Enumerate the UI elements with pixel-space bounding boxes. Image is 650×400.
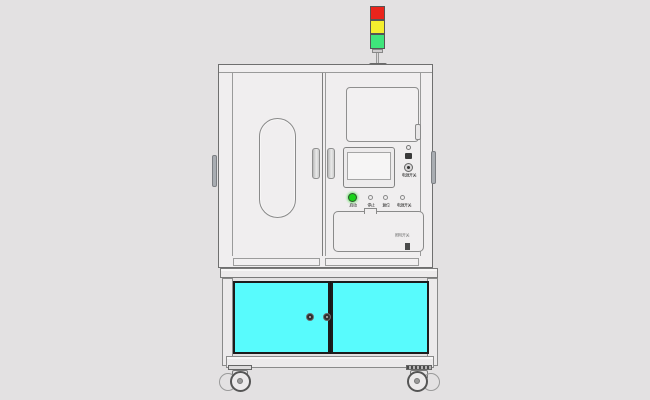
right-caster-hub bbox=[414, 378, 420, 384]
upper-bottom-band bbox=[221, 256, 430, 267]
start-button-label: 启动 bbox=[346, 204, 360, 208]
keyboard-tray-panel: 照明开关 bbox=[333, 211, 424, 252]
start-button bbox=[348, 193, 357, 202]
stop-button bbox=[368, 195, 373, 200]
left-caster-hub bbox=[237, 378, 243, 384]
stack-light-yellow-lamp bbox=[370, 20, 385, 34]
left-caster-wheel bbox=[230, 371, 251, 392]
power-button bbox=[400, 195, 405, 200]
selector-knob bbox=[404, 163, 413, 172]
lower-cabinet-doors bbox=[233, 281, 429, 354]
rocker-switch bbox=[405, 153, 412, 159]
tray-lower-label: 照明开关 bbox=[394, 234, 410, 238]
lower-right-door bbox=[331, 281, 429, 354]
right-caster bbox=[396, 363, 440, 395]
right-door-knob-dot bbox=[326, 316, 328, 318]
stack-light-red-lamp bbox=[370, 6, 385, 20]
tray-notch bbox=[364, 208, 377, 214]
power-button-label: 电源开关 bbox=[394, 204, 415, 208]
left-door-window bbox=[259, 118, 296, 218]
stack-light bbox=[368, 5, 388, 67]
hmi-screen-bezel bbox=[343, 147, 395, 188]
selector-knob-dot bbox=[407, 166, 410, 169]
reset-button-label: 复位 bbox=[379, 204, 393, 208]
right-caster-wheel bbox=[407, 371, 428, 392]
right-door-handle bbox=[327, 148, 335, 179]
reset-button bbox=[383, 195, 388, 200]
left-side-handle bbox=[212, 155, 217, 187]
left-door-handle bbox=[312, 148, 320, 179]
left-frame-line bbox=[232, 73, 233, 256]
bottom-band-right-panel bbox=[325, 258, 419, 266]
stand-left-post bbox=[222, 278, 233, 366]
tray-connector bbox=[405, 243, 410, 250]
left-caster bbox=[218, 363, 262, 395]
selector-knob-label: 电源开关 bbox=[399, 174, 420, 178]
stack-light-green-lamp bbox=[370, 34, 385, 49]
right-door-knob bbox=[323, 313, 331, 321]
center-divider-line-2 bbox=[325, 73, 326, 256]
upper-window-latch bbox=[415, 124, 421, 140]
lower-left-door bbox=[233, 281, 330, 354]
power-indicator-light bbox=[406, 145, 411, 150]
left-door-knob bbox=[306, 313, 314, 321]
machine-drawing-scene: 电源开关 启动 停止 复位 电源开关 照明开关 bbox=[0, 0, 650, 400]
upper-right-window bbox=[346, 87, 419, 142]
bottom-band-left-panel bbox=[233, 258, 320, 266]
hmi-screen bbox=[347, 152, 391, 180]
right-side-handle bbox=[431, 151, 436, 184]
left-door-knob-dot bbox=[309, 316, 311, 318]
center-divider-line bbox=[322, 73, 323, 256]
stand-table-top bbox=[220, 268, 438, 278]
